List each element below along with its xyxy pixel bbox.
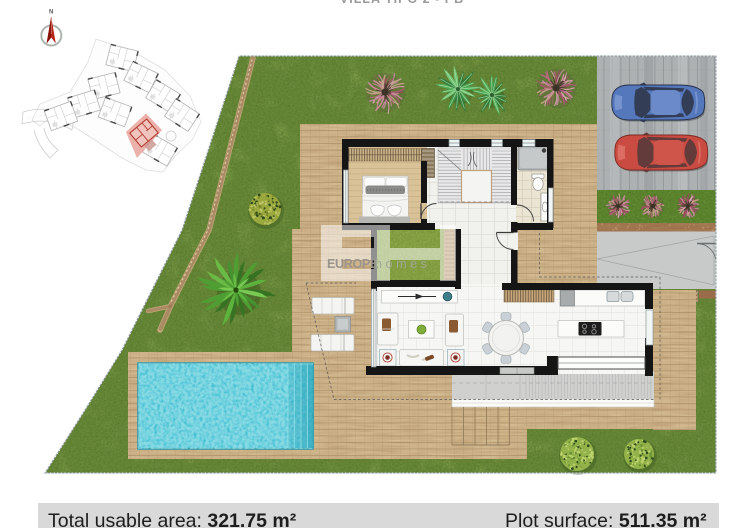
svg-text:VILLA TIPO 2 - PB: VILLA TIPO 2 - PB (340, 0, 464, 6)
svg-text:Plot surface: 511.35 m²: Plot surface: 511.35 m² (505, 510, 707, 528)
svg-text:homes: homes (375, 257, 431, 271)
svg-text:Total usable area: 321.75 m²: Total usable area: 321.75 m² (48, 510, 297, 528)
svg-text:EUROPE: EUROPE (327, 257, 378, 271)
svg-text:N: N (49, 10, 53, 16)
